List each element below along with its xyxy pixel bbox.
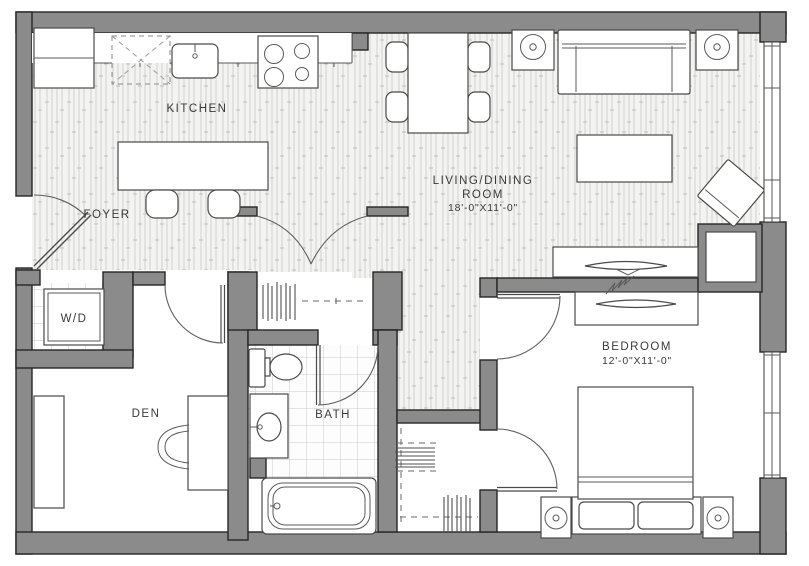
wall-bath-top xyxy=(248,330,318,345)
wall-right-middle xyxy=(760,222,786,352)
alcove-closet xyxy=(706,232,756,282)
hanging-clothes-icon xyxy=(444,495,470,533)
bookcase-icon xyxy=(34,396,64,508)
wall-bottom xyxy=(16,532,786,554)
vanity-sink-icon xyxy=(250,394,288,458)
desk-icon xyxy=(188,396,228,490)
bed-icon xyxy=(572,387,701,534)
bathtub-icon xyxy=(262,478,376,534)
stool-icon xyxy=(208,190,240,218)
dining-table-icon xyxy=(408,33,468,133)
end-table-right xyxy=(696,30,738,70)
laundry-label: W/D xyxy=(61,313,88,325)
pillow xyxy=(638,502,693,529)
bedroom-dims: 12'-0"X11'-0" xyxy=(602,355,672,367)
stool-icon xyxy=(146,190,178,218)
wall-closet-side-left xyxy=(228,272,257,330)
dining-chair-icon xyxy=(468,42,490,72)
wall-bedroom-top xyxy=(497,278,700,292)
wall-laundry-right xyxy=(103,272,133,357)
bedroom-label: BEDROOM xyxy=(602,341,672,353)
wall-right-top-corner xyxy=(760,12,786,42)
wall-tub-nub xyxy=(250,458,266,478)
pillow xyxy=(579,502,634,529)
bedroom-window xyxy=(764,352,780,478)
kitchen-label: KITCHEN xyxy=(167,103,228,115)
sofa-icon xyxy=(558,30,690,94)
living-room-label-2: ROOM xyxy=(462,189,504,201)
living-room-dims: 18'-0"X11'-0" xyxy=(448,202,518,214)
wall-bedroom-left-b xyxy=(480,360,497,430)
floor-plan-drawing: KITCHEN FOYER W/D LIVING/DINING ROOM 18'… xyxy=(0,0,809,566)
living-room-window xyxy=(764,42,780,222)
bath-label: BATH xyxy=(315,409,351,421)
wall-bedroom-left-c xyxy=(480,490,497,532)
dining-chair-icon xyxy=(386,42,408,72)
wall-right-bottom xyxy=(760,478,786,554)
wall-den-top xyxy=(16,350,133,368)
dining-chair-icon xyxy=(468,92,490,122)
dining-chair-icon xyxy=(386,92,408,122)
wall-bedroom-left-a xyxy=(480,278,497,297)
nightstand-right xyxy=(703,497,733,538)
wall-closet-stub-right xyxy=(367,207,408,216)
wall-bath-right xyxy=(378,330,397,532)
floor-plan: KITCHEN FOYER W/D LIVING/DINING ROOM 18'… xyxy=(0,0,809,566)
tv-console-icon xyxy=(553,247,698,277)
nightstand-left xyxy=(541,497,571,538)
wall-den-door-left xyxy=(133,272,165,285)
wall-foyer-bottom xyxy=(16,270,40,285)
wall-closet-side-right xyxy=(373,272,402,330)
wall-closet-entry xyxy=(397,410,483,423)
refrigerator-icon xyxy=(34,28,94,88)
foyer-label: FOYER xyxy=(83,209,130,221)
den-label: DEN xyxy=(132,408,161,420)
wall-left-lower xyxy=(16,268,32,554)
sink-icon xyxy=(172,44,218,78)
wall-counter-end xyxy=(352,33,368,50)
wall-left-upper xyxy=(16,12,32,196)
living-room-label: LIVING/DINING xyxy=(433,175,534,187)
coffee-table-icon xyxy=(577,135,672,182)
stove-icon xyxy=(258,36,318,88)
end-table-left xyxy=(512,30,554,70)
